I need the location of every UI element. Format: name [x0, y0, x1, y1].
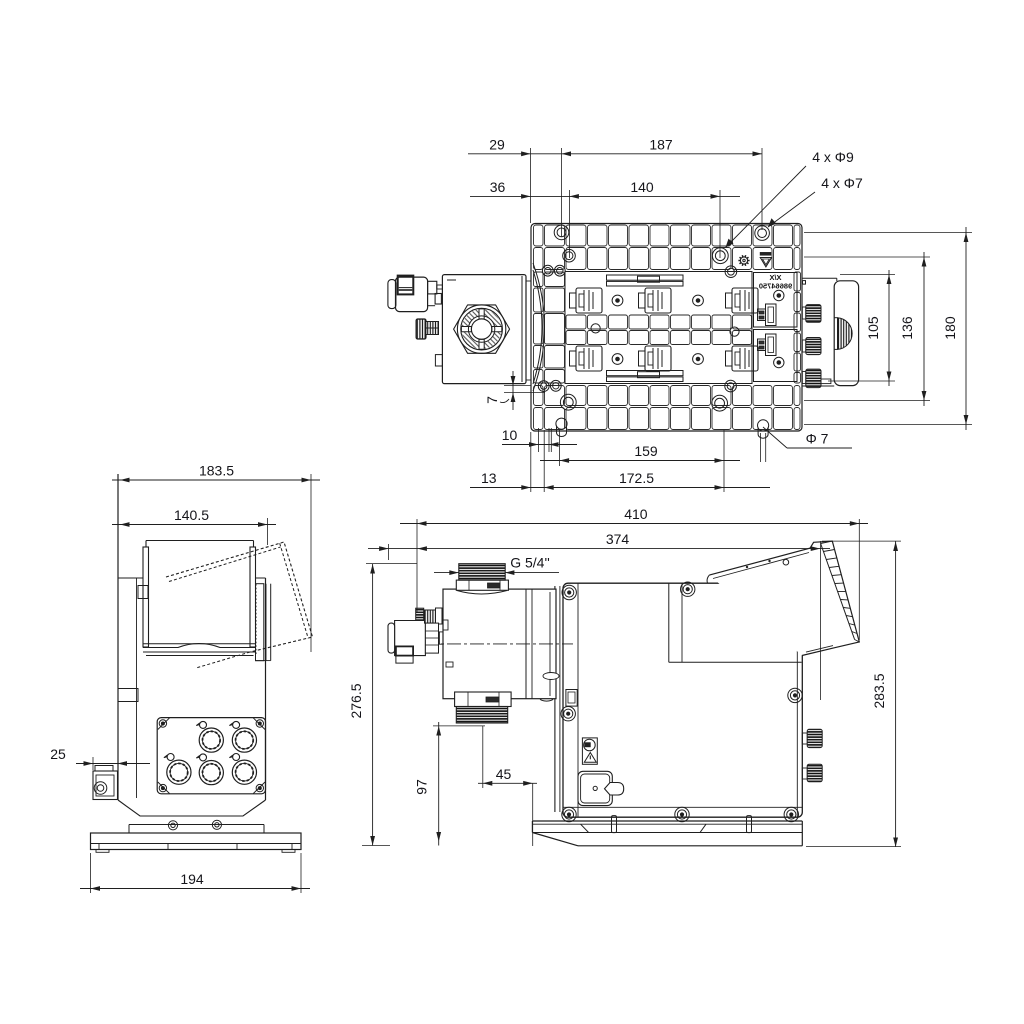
- svg-text:Φ 7: Φ 7: [806, 431, 829, 447]
- svg-text:98664750: 98664750: [759, 282, 792, 291]
- svg-text:10: 10: [502, 427, 518, 443]
- svg-text:4 x Φ9: 4 x Φ9: [812, 149, 854, 165]
- svg-text:283.5: 283.5: [871, 673, 887, 708]
- svg-text:159: 159: [634, 443, 658, 459]
- svg-text:187: 187: [649, 136, 673, 152]
- svg-text:7: 7: [484, 396, 500, 404]
- svg-text:45: 45: [496, 766, 512, 782]
- svg-text:25: 25: [50, 746, 66, 762]
- svg-text:136: 136: [899, 316, 915, 340]
- svg-text:172.5: 172.5: [619, 470, 654, 486]
- svg-text:140: 140: [630, 179, 654, 195]
- svg-text:140.5: 140.5: [174, 507, 209, 523]
- svg-text:G 5/4'': G 5/4'': [510, 555, 550, 571]
- svg-text:97: 97: [414, 779, 430, 795]
- svg-text:374: 374: [606, 531, 630, 547]
- svg-text:105: 105: [865, 316, 881, 340]
- svg-text:36: 36: [490, 179, 506, 195]
- svg-text:13: 13: [481, 470, 497, 486]
- svg-text:194: 194: [180, 871, 204, 887]
- svg-text:4 x Φ7: 4 x Φ7: [821, 175, 863, 191]
- svg-text:410: 410: [624, 506, 648, 522]
- svg-text:276.5: 276.5: [348, 683, 364, 718]
- svg-text:180: 180: [942, 316, 958, 340]
- svg-text:183.5: 183.5: [199, 463, 234, 479]
- svg-text:29: 29: [489, 136, 505, 152]
